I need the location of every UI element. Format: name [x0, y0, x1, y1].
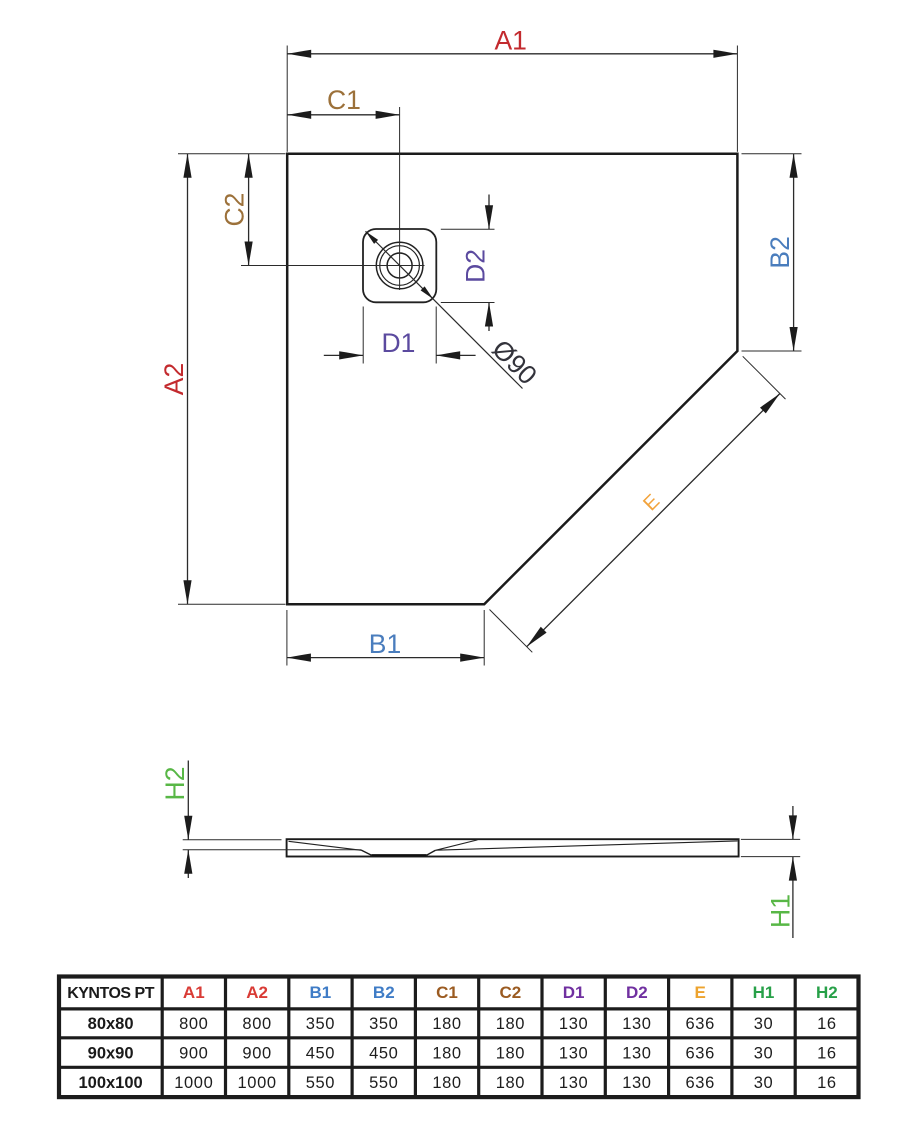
svg-text:H2: H2	[816, 983, 838, 1002]
svg-text:130: 130	[559, 1074, 588, 1092]
svg-text:KYNTOS PT: KYNTOS PT	[67, 985, 155, 1002]
svg-text:180: 180	[496, 1074, 525, 1092]
svg-text:550: 550	[369, 1074, 398, 1092]
svg-text:130: 130	[559, 1015, 588, 1033]
svg-text:180: 180	[432, 1074, 461, 1092]
svg-text:800: 800	[242, 1015, 271, 1033]
svg-text:C1: C1	[436, 983, 458, 1002]
svg-text:636: 636	[686, 1074, 715, 1092]
svg-text:800: 800	[179, 1015, 208, 1033]
svg-text:30: 30	[754, 1074, 774, 1092]
svg-text:B2: B2	[373, 983, 395, 1002]
svg-text:D1: D1	[381, 328, 415, 358]
svg-text:450: 450	[306, 1044, 335, 1062]
svg-text:E: E	[695, 983, 706, 1002]
svg-text:100x100: 100x100	[78, 1074, 142, 1092]
svg-text:1000: 1000	[174, 1074, 213, 1092]
svg-text:450: 450	[369, 1044, 398, 1062]
svg-text:D1: D1	[563, 983, 585, 1002]
svg-text:1000: 1000	[238, 1074, 277, 1092]
svg-text:636: 636	[686, 1044, 715, 1062]
svg-text:H1: H1	[766, 894, 796, 928]
svg-text:130: 130	[622, 1074, 651, 1092]
svg-text:636: 636	[686, 1015, 715, 1033]
svg-text:H2: H2	[160, 767, 190, 801]
svg-text:180: 180	[496, 1044, 525, 1062]
svg-text:E: E	[639, 490, 664, 515]
svg-text:550: 550	[306, 1074, 335, 1092]
svg-text:180: 180	[496, 1015, 525, 1033]
svg-text:180: 180	[432, 1044, 461, 1062]
svg-text:16: 16	[817, 1015, 837, 1033]
svg-text:A2: A2	[246, 983, 268, 1002]
svg-text:C2: C2	[220, 193, 250, 227]
svg-text:16: 16	[817, 1074, 837, 1092]
svg-text:30: 30	[754, 1044, 774, 1062]
svg-text:C1: C1	[327, 85, 361, 115]
svg-text:900: 900	[179, 1044, 208, 1062]
svg-text:80x80: 80x80	[88, 1015, 134, 1033]
svg-text:900: 900	[242, 1044, 271, 1062]
svg-text:180: 180	[432, 1015, 461, 1033]
svg-text:Ø90: Ø90	[486, 334, 543, 391]
svg-text:30: 30	[754, 1015, 774, 1033]
svg-text:B2: B2	[765, 236, 795, 268]
svg-text:A1: A1	[183, 983, 205, 1002]
svg-text:A1: A1	[494, 26, 526, 56]
svg-text:H1: H1	[753, 983, 775, 1002]
svg-text:C2: C2	[500, 983, 522, 1002]
svg-text:350: 350	[306, 1015, 335, 1033]
svg-text:130: 130	[559, 1044, 588, 1062]
svg-text:A2: A2	[159, 363, 189, 395]
svg-text:B1: B1	[310, 983, 332, 1002]
svg-text:130: 130	[622, 1044, 651, 1062]
svg-text:B1: B1	[369, 629, 401, 659]
svg-text:D2: D2	[460, 249, 490, 283]
svg-text:D2: D2	[626, 983, 648, 1002]
svg-text:90x90: 90x90	[88, 1044, 134, 1062]
svg-text:130: 130	[622, 1015, 651, 1033]
svg-text:350: 350	[369, 1015, 398, 1033]
svg-text:16: 16	[817, 1044, 837, 1062]
